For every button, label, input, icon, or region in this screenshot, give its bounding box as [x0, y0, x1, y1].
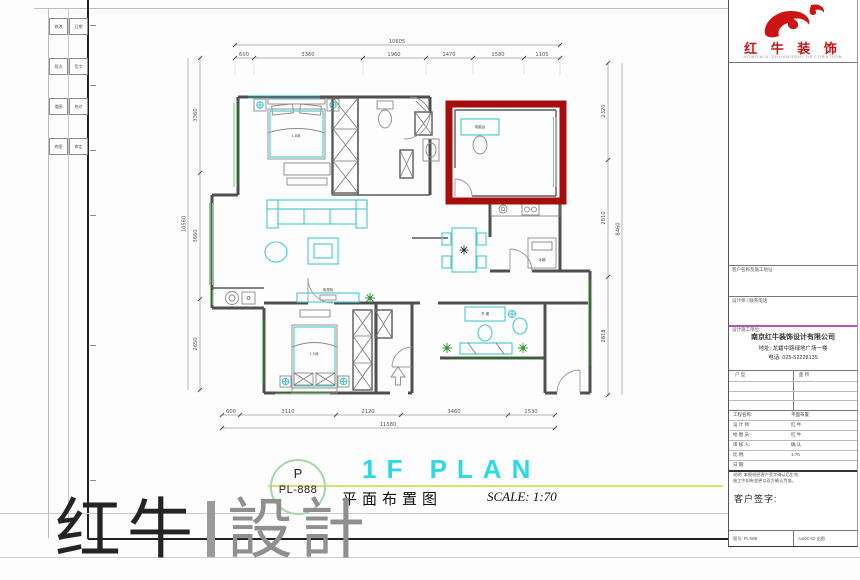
field-label: 设 计 师:	[733, 422, 750, 428]
utility-room	[226, 292, 256, 305]
customer-signature-label: 客户签字:	[734, 492, 778, 505]
field-label: 日 期:	[733, 462, 745, 468]
watermark-right: 設計	[227, 496, 371, 562]
field-value: 平面布置	[791, 412, 809, 418]
brand-watermark: 红牛 設計	[55, 496, 371, 562]
desk-label: 电脑台	[475, 124, 486, 129]
dim-seg: 1960	[387, 52, 400, 58]
dim-seg: 3360	[301, 52, 314, 58]
dim-total-right: 8460	[616, 222, 622, 235]
table-header-2: 面 积	[799, 372, 809, 378]
drawing-sheet: 修改 日期 版次 签字 描图 校对 底图 审定 10605 600 3360 1…	[0, 0, 860, 580]
title-underline	[268, 485, 723, 487]
dim-total-left: 10560	[182, 216, 188, 233]
bull-logo-icon	[753, 2, 833, 38]
field-label: 比 例:	[733, 452, 745, 458]
dim-seg: 2818	[601, 329, 607, 342]
fold-cell: 描图	[49, 98, 68, 115]
windows	[210, 96, 592, 394]
field-row: 日 期:	[729, 460, 857, 470]
kitchen: 冰箱	[491, 202, 560, 268]
tv-cabinet-label: 电视柜	[323, 287, 334, 292]
company-info: 南京红牛装饰设计有限公司 地址: 龙蟠中路绿地广场一楼 电话: 025-5222…	[729, 332, 857, 363]
fold-cell: 版次	[49, 58, 68, 75]
highlighted-room: 电脑台	[461, 119, 499, 154]
dining	[442, 228, 486, 272]
brand-tagline: HONGNIU ZHUANGSHI DECORATION	[729, 54, 857, 59]
dim-seg: 600	[239, 52, 249, 58]
field-label: 工程名称:	[733, 412, 752, 418]
leisure-desk-label: 书 桌	[481, 311, 490, 316]
field-label: 绘 图 员:	[733, 432, 750, 438]
client-row-label: 客户名称及施工地址:	[732, 267, 774, 273]
field-row: 比 例: 1:70	[729, 450, 857, 460]
table-header-1: 户 型	[735, 372, 745, 378]
field-label: 审 核 人:	[733, 442, 750, 448]
dimension-top: 10605 600 3360 1960 1470 1580 1105	[233, 39, 562, 75]
master-bedroom: 1.8床	[254, 98, 358, 193]
dim-seg: 1105	[535, 52, 548, 58]
scale-text: SCALE: 1:70	[487, 489, 557, 505]
dim-seg: 3360	[193, 108, 199, 121]
company-phone: 电话: 025-52228135	[729, 354, 857, 363]
dim-seg: 2650	[193, 337, 199, 350]
plant	[442, 343, 452, 353]
entry-arrow	[391, 367, 405, 385]
note-line: 施工中如有变更以双方确认为准。	[733, 478, 799, 484]
field-row: 绘 图 员: 红 牛	[729, 430, 857, 440]
living-room: 电视柜	[265, 200, 375, 303]
fold-cell: 底图	[49, 138, 68, 155]
fold-cell: 审定	[69, 138, 88, 155]
floor-plan-svg: 10605 600 3360 1960 1470 1580 1105 600 3…	[180, 35, 625, 455]
dimension-right: 2320 2810 2818 8460	[601, 61, 622, 397]
dimension-bottom: 600 3110 2120 3460 1530 11580	[220, 409, 557, 430]
table-centerpiece	[460, 246, 469, 255]
fridge: 冰箱	[528, 238, 556, 268]
master-bed-label: 1.8床	[291, 133, 301, 138]
fridge-label: 冰箱	[538, 257, 546, 262]
fold-cell: 日期	[69, 18, 88, 35]
dim-seg: 1530	[524, 409, 537, 415]
field-row: 审 核 人: 确 认	[729, 440, 857, 450]
plan-title-en: 1F PLAN	[362, 454, 540, 485]
dimension-left: 3360 3660 2650 10560	[182, 56, 203, 392]
fold-strip-mid-line	[68, 8, 69, 538]
title-block: 红 牛 装 饰 HONGNIU ZHUANGSHI DECORATION 客户名…	[728, 0, 858, 547]
fold-cell: 校对	[69, 98, 88, 115]
watermark-divider	[207, 501, 215, 557]
field-value: 1:70	[791, 452, 800, 457]
second-bed-label: 1.5床	[309, 351, 319, 356]
dim-seg: 1580	[491, 52, 504, 58]
watermark-left: 红牛	[55, 496, 199, 562]
dim-seg: 3660	[193, 229, 199, 242]
fold-cell: 签字	[69, 58, 88, 75]
leisure-room: 书 桌	[442, 307, 528, 354]
dim-seg: 2120	[361, 409, 374, 415]
dim-seg: 600	[226, 409, 236, 415]
frame-thick-vline	[87, 0, 89, 539]
company-address: 地址: 龙蟠中路绿地广场一楼	[729, 345, 857, 354]
footer-cell-right: AutoCAD 出图	[794, 532, 858, 546]
field-row: 设 计 师: 红 牛	[729, 420, 857, 430]
dim-seg: 1470	[442, 52, 455, 58]
company-name: 南京红牛装饰设计有限公司	[729, 332, 857, 343]
frame-top-line	[34, 8, 728, 9]
wardrobe-master	[333, 98, 358, 193]
dim-total-top: 10605	[389, 39, 406, 45]
dim-seg: 2810	[601, 211, 607, 224]
dim-total-bottom: 11580	[380, 422, 397, 428]
field-value: 红 牛	[791, 432, 801, 438]
footer-cell-left: 图号: PL-888	[729, 532, 795, 546]
dim-seg: 3110	[281, 409, 294, 415]
hall-cabinet	[400, 150, 413, 178]
dim-seg: 3460	[447, 409, 460, 415]
field-row: 工程名称: 平面布置	[729, 410, 857, 420]
note-text: 说明: 本图纸经客户签字确认后生效, 施工中如有变更以双方确认为准。	[733, 472, 799, 485]
field-value: 确 认	[791, 442, 801, 448]
designer-row-label: 设计师 / 联系电话:	[732, 298, 769, 304]
fold-cell: 修改	[49, 18, 68, 35]
plant	[518, 343, 528, 353]
dim-seg: 2320	[601, 104, 607, 117]
plant	[365, 293, 375, 303]
field-value: 红 牛	[791, 422, 801, 428]
wardrobe-second	[353, 310, 392, 390]
drawing-letter: P	[272, 466, 324, 481]
fold-strip-left-line	[48, 8, 49, 538]
